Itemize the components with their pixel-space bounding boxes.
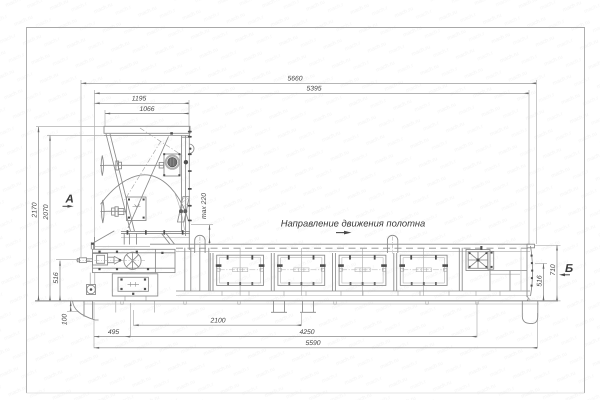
svg-text:5590: 5590 <box>305 340 320 347</box>
svg-text:2100: 2100 <box>209 318 225 325</box>
svg-text:2070: 2070 <box>43 204 50 220</box>
svg-text:495: 495 <box>108 329 120 336</box>
svg-text:Б: Б <box>565 263 573 275</box>
svg-text:710: 710 <box>550 264 557 276</box>
svg-text:А: А <box>65 194 74 206</box>
svg-text:2170: 2170 <box>32 202 39 218</box>
svg-text:516: 516 <box>53 272 60 284</box>
svg-text:516: 516 <box>537 275 544 287</box>
svg-text:4250: 4250 <box>299 329 314 336</box>
svg-text:1066: 1066 <box>139 106 154 113</box>
svg-text:5395: 5395 <box>306 86 321 93</box>
svg-text:max 220: max 220 <box>201 193 208 219</box>
svg-text:5660: 5660 <box>287 76 302 83</box>
svg-text:Направление движения полотна: Направление движения полотна <box>281 217 426 228</box>
svg-text:1195: 1195 <box>132 96 147 103</box>
svg-text:100: 100 <box>61 314 68 326</box>
